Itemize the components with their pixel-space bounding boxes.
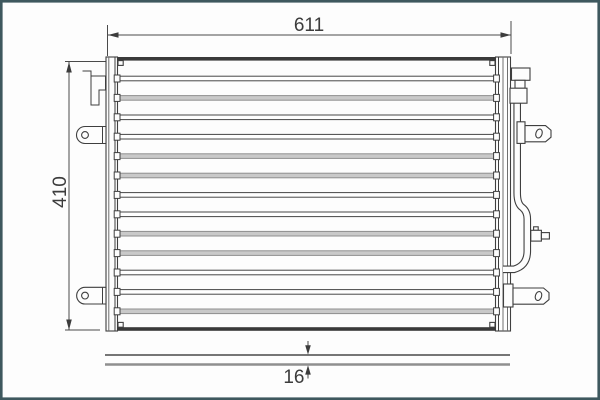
- tube-joint-notch: [494, 250, 500, 257]
- core-bottom-right-step: [490, 322, 495, 327]
- bottom-profile-view: [105, 355, 510, 365]
- condenser-tube: [118, 290, 496, 295]
- tube-joint-notch: [494, 75, 500, 82]
- condenser-tube: [118, 115, 496, 120]
- tube-joint-notch: [114, 75, 120, 82]
- core-bottom-left-step: [118, 322, 123, 327]
- tube-joint-notch: [114, 211, 120, 218]
- condenser-tube: [118, 76, 496, 81]
- tube-joint-notch: [114, 288, 120, 295]
- condenser-technical-drawing: 611 410: [0, 0, 600, 400]
- bracket-rail: [504, 284, 514, 307]
- mounting-bracket-right-lower: [504, 284, 550, 307]
- arrowhead-left-icon: [108, 32, 119, 38]
- bracket-body: [513, 288, 549, 304]
- tube-joint-notch: [114, 94, 120, 101]
- condenser-tube: [118, 96, 496, 101]
- tube-joint-notch: [494, 230, 500, 237]
- dimension-width: 611: [108, 15, 512, 56]
- condenser-tube: [118, 154, 496, 159]
- tube-joint-notch: [114, 172, 120, 179]
- top-left-fixing-plate: [83, 71, 106, 105]
- arrowhead-down-icon: [305, 345, 311, 354]
- condenser-tube: [118, 231, 496, 236]
- tube-joint-notch: [114, 153, 120, 160]
- condenser-tube: [118, 212, 496, 217]
- tube-joint-notch: [114, 269, 120, 276]
- tube-joint-notch: [494, 94, 500, 101]
- tube-joint-notch: [494, 153, 500, 160]
- tube-joint-notch: [494, 133, 500, 140]
- bracket-hole: [82, 132, 89, 139]
- condenser-tube: [118, 270, 496, 275]
- tube-joint-notch: [114, 114, 120, 121]
- bracket-rail: [517, 122, 525, 144]
- service-valve: [531, 227, 550, 241]
- tube-joint-notch: [114, 230, 120, 237]
- bracket-hole: [82, 292, 89, 299]
- core-top-right-step: [490, 61, 495, 66]
- condenser-front-view: [77, 57, 552, 331]
- height-dimension-label: 410: [50, 176, 71, 208]
- tube-joint-notch: [494, 211, 500, 218]
- arrowhead-bottom-icon: [66, 320, 72, 331]
- tube-joint-notch: [494, 288, 500, 295]
- core-top-bar: [118, 57, 496, 61]
- mounting-bracket-left-upper: [77, 127, 107, 144]
- condenser-tube: [118, 134, 496, 139]
- fitting-neck: [515, 80, 525, 88]
- tube-joint-notch: [494, 191, 500, 198]
- tube-joint-notch: [114, 308, 120, 315]
- mounting-bracket-right-upper: [517, 122, 551, 144]
- tube-joint-notch: [494, 172, 500, 179]
- core-top-left-step: [118, 61, 123, 66]
- tube-joint-notch: [494, 308, 500, 315]
- refrigerant-port-fittings: [510, 68, 530, 103]
- arrowhead-right-icon: [501, 32, 512, 38]
- condenser-tube: [118, 309, 496, 314]
- tube-joint-notch: [114, 191, 120, 198]
- valve-cap: [541, 233, 549, 239]
- arrowhead-top-icon: [66, 62, 72, 73]
- condenser-tube: [118, 251, 496, 256]
- width-dimension-label: 611: [294, 15, 324, 36]
- tube-joint-notch: [114, 133, 120, 140]
- condenser-tube: [118, 173, 496, 178]
- depth-dimension-label: 16: [283, 367, 304, 388]
- condenser-tube: [118, 193, 496, 198]
- tube-joint-notch: [494, 269, 500, 276]
- inlet-fitting-block: [512, 68, 531, 80]
- valve-body: [531, 230, 542, 241]
- arrowhead-up-icon: [305, 365, 311, 374]
- core-bottom-bar: [118, 327, 496, 331]
- tube-joint-notch: [114, 250, 120, 257]
- mounting-bracket-left-lower: [77, 287, 106, 304]
- technical-drawing-page: 611 410: [0, 0, 600, 400]
- outlet-fitting-block: [510, 88, 527, 103]
- tube-joint-notch: [494, 114, 500, 121]
- bracket-body: [77, 127, 107, 144]
- condenser-core-tubes: [118, 76, 496, 313]
